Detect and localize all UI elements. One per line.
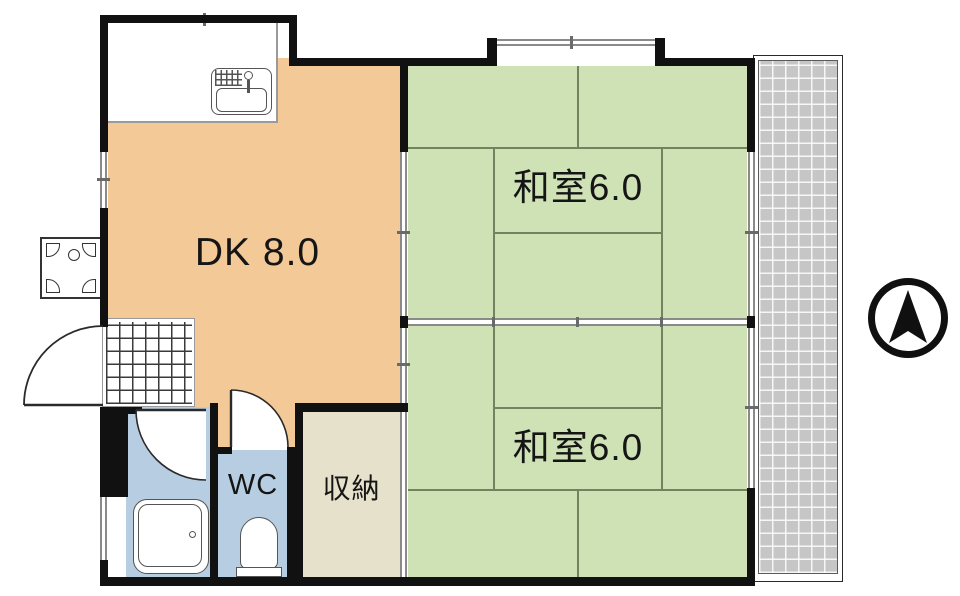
wall-top-mid — [289, 58, 497, 66]
room-label-wc: WC — [218, 471, 288, 500]
window-tick — [660, 317, 663, 327]
north-arrow-glyph — [875, 285, 941, 351]
room-label-storage: 収納 — [303, 475, 400, 503]
wall-top-kitchen — [100, 15, 297, 23]
washing-machine-pan-icon — [40, 237, 102, 299]
wall-storage-left — [295, 403, 303, 577]
fusuma-storage — [400, 412, 407, 577]
wall-bay-post-right — [655, 38, 665, 66]
pan-corner-icon — [82, 243, 96, 257]
window-tick — [576, 317, 579, 327]
tatami-line — [577, 489, 579, 577]
room-label-dk: DK 8.0 — [150, 233, 365, 272]
wall-wc-door-post — [218, 447, 232, 454]
pan-corner-icon — [46, 243, 60, 257]
wall-bay-post-left — [487, 38, 497, 66]
room-label-washitsu-bottom: 和室6.0 — [468, 429, 688, 466]
wall-divider-upper — [400, 58, 408, 152]
pan-corner-icon — [46, 279, 60, 293]
tatami-line — [493, 232, 663, 234]
window-tick — [745, 406, 758, 409]
pan-corner-icon — [82, 279, 96, 293]
wall-right-post — [747, 316, 755, 328]
wall-wc-left — [210, 403, 218, 577]
wall-right-upper — [747, 58, 755, 152]
floor-plan-canvas: DK 8.0 和室6.0 和室6.0 WC 収納 — [0, 0, 960, 596]
window-tick — [492, 317, 495, 327]
north-arrow-icon — [868, 278, 948, 358]
toilet-tank-icon — [236, 567, 282, 577]
bathtub-drain-icon — [189, 531, 196, 538]
bathtub-icon — [133, 499, 209, 574]
fusuma-dk-top-room — [400, 152, 407, 316]
wall-storage-top — [295, 403, 408, 412]
wall-top-right — [665, 58, 755, 66]
wall-left-mid — [100, 208, 108, 327]
pan-drain-icon — [68, 249, 80, 261]
tatami-line — [577, 66, 579, 148]
balcony-sliding-door-top — [748, 152, 755, 316]
washitsu-bay-window — [497, 39, 655, 46]
wall-bottom — [100, 577, 755, 586]
faucet-stem-icon — [247, 80, 250, 93]
window-tick — [97, 178, 110, 181]
room-label-washitsu-top: 和室6.0 — [468, 169, 688, 206]
sink-drainboard-icon — [215, 70, 242, 86]
window-tick — [745, 231, 758, 234]
sink-basin-icon — [216, 88, 267, 112]
tatami-line — [493, 407, 663, 409]
toilet-icon — [240, 517, 278, 569]
balcony-deck-icon — [758, 60, 838, 574]
entry-swing-door-icon — [24, 326, 103, 405]
wall-right-lower — [747, 488, 755, 585]
window-tick — [570, 36, 573, 49]
wall-left-bath-block — [100, 407, 128, 497]
window-tick — [397, 231, 410, 234]
window-tick — [397, 363, 410, 366]
wall-wc-right — [287, 447, 295, 577]
wall-bath-door-post — [128, 407, 142, 414]
wall-divider-post — [400, 316, 408, 328]
genkan-tile-grid-icon — [106, 322, 192, 404]
bathroom-window — [100, 497, 107, 560]
wall-left-upper — [100, 15, 108, 152]
faucet-icon — [244, 71, 253, 80]
